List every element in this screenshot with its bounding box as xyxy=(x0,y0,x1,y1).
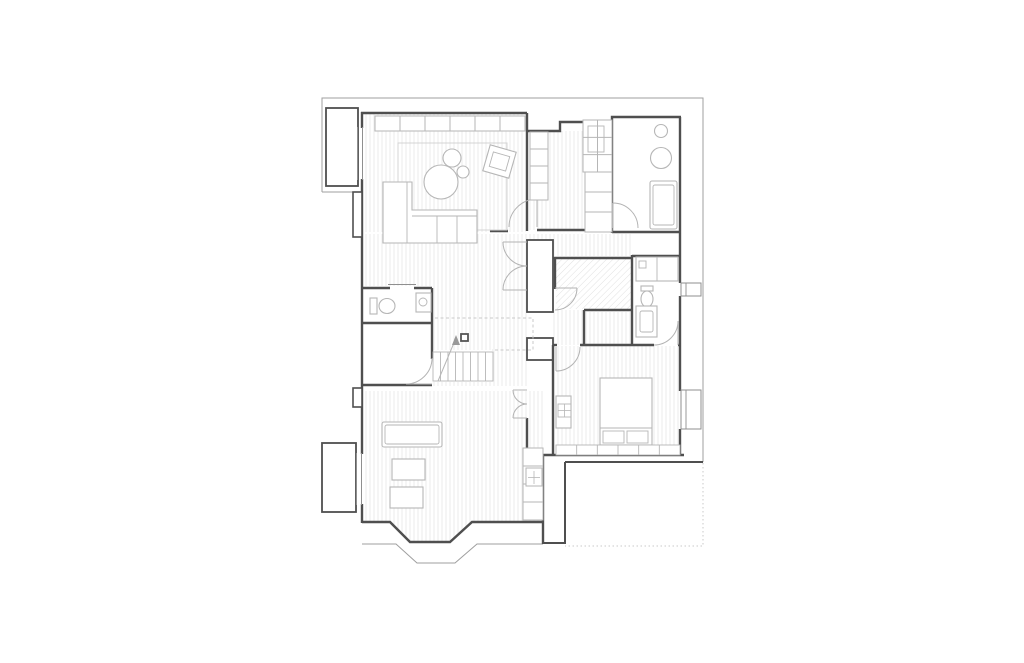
closet-wardrobe-west xyxy=(530,132,548,200)
wall-bath1-north xyxy=(612,117,681,122)
wall-pier-hall xyxy=(527,240,553,312)
floor-hatch-passage xyxy=(553,310,584,345)
dining-table xyxy=(382,422,442,447)
window-east-bath xyxy=(681,283,701,296)
floor-hatch-alcove xyxy=(584,312,632,344)
wc-sink xyxy=(416,293,431,312)
bed-pillow-right xyxy=(627,431,648,443)
closet-wardrobe-east xyxy=(583,120,612,172)
wall-jog-northwest xyxy=(353,192,362,237)
structural-column xyxy=(461,334,468,341)
door-storage-swing xyxy=(406,358,432,384)
floor-plan-page xyxy=(0,0,1024,663)
eaves-outline-bay xyxy=(362,544,543,563)
lower-floor-dotted-outline xyxy=(565,463,703,546)
bath1-basin-small xyxy=(655,125,668,138)
bath2-toilet-bowl xyxy=(641,291,653,307)
bedroom-low-cabinet xyxy=(556,445,680,455)
bed-pillow-left xyxy=(603,431,624,443)
coffee-table-small xyxy=(457,166,469,178)
window-east-bedroom xyxy=(681,390,701,429)
wc-toilet-bowl xyxy=(379,299,395,314)
floor-hatch-dining xyxy=(363,391,543,541)
living-wall-cabinet xyxy=(375,116,525,131)
wall-pier-bedroom xyxy=(527,338,553,360)
bath2-shower-head xyxy=(639,261,646,268)
floor-plan xyxy=(0,0,1024,663)
coffee-table-large xyxy=(424,165,458,199)
kitchen-island-b xyxy=(390,487,423,508)
door-bath2-swing xyxy=(654,321,678,345)
coffee-table-medium xyxy=(443,149,461,167)
bath2-toilet-tank xyxy=(641,286,653,291)
wall-jog-west xyxy=(353,388,362,407)
closet-counter xyxy=(585,172,612,232)
balcony-west xyxy=(322,443,356,512)
kitchen-island-a xyxy=(392,459,425,480)
wc-toilet-tank xyxy=(370,298,377,314)
floor-hatch-storeroom xyxy=(556,259,631,309)
bath1-basin-large xyxy=(651,148,672,169)
bath1-tub xyxy=(650,181,677,229)
balcony-north xyxy=(326,108,358,186)
door-bath1-swing xyxy=(613,203,638,228)
